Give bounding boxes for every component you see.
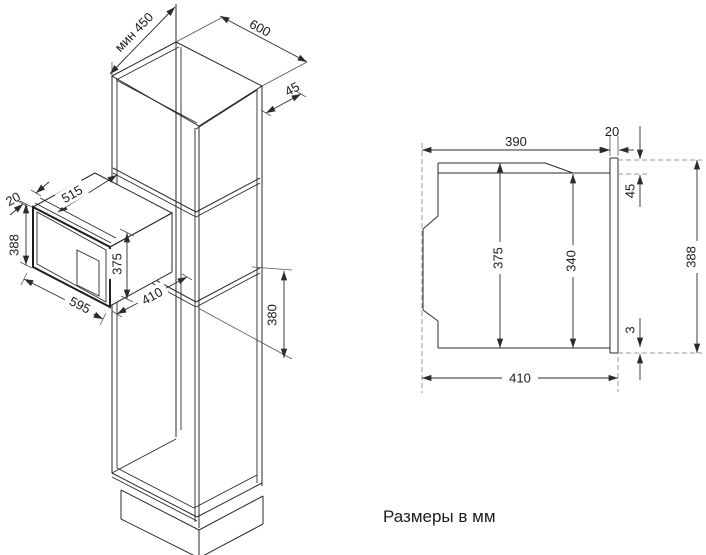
installation-dimensions-diagram: мин 450 600 45 20 388 515 xyxy=(0,0,706,555)
dim-side-frame-thickness-label: 20 xyxy=(605,124,619,139)
dim-side-body-height-label: 375 xyxy=(491,247,506,269)
dim-side-total-depth-label: 410 xyxy=(509,371,531,386)
dim-niche-height-label: 380 xyxy=(265,304,280,326)
dim-side-bottom-gap-label: 3 xyxy=(623,326,638,333)
units-caption: Размеры в мм xyxy=(383,507,496,526)
dim-side-frame-height-label: 388 xyxy=(684,246,699,268)
dim-front-clearance-label: 45 xyxy=(282,79,302,99)
dim-cabinet-width-label: 600 xyxy=(247,16,273,39)
dim-side-front-height-label: 340 xyxy=(564,250,579,272)
dim-door-height-label: 388 xyxy=(7,234,22,256)
installation-dimensions-page: мин 450 600 45 20 388 515 xyxy=(0,0,706,555)
dim-side-body-depth-label: 390 xyxy=(505,134,527,149)
dim-niche-min-depth-label: мин 450 xyxy=(112,9,157,54)
dim-side-top-overhang-label: 45 xyxy=(623,184,638,198)
dim-body-height-label: 375 xyxy=(110,253,125,275)
side-view-linework xyxy=(422,136,702,393)
